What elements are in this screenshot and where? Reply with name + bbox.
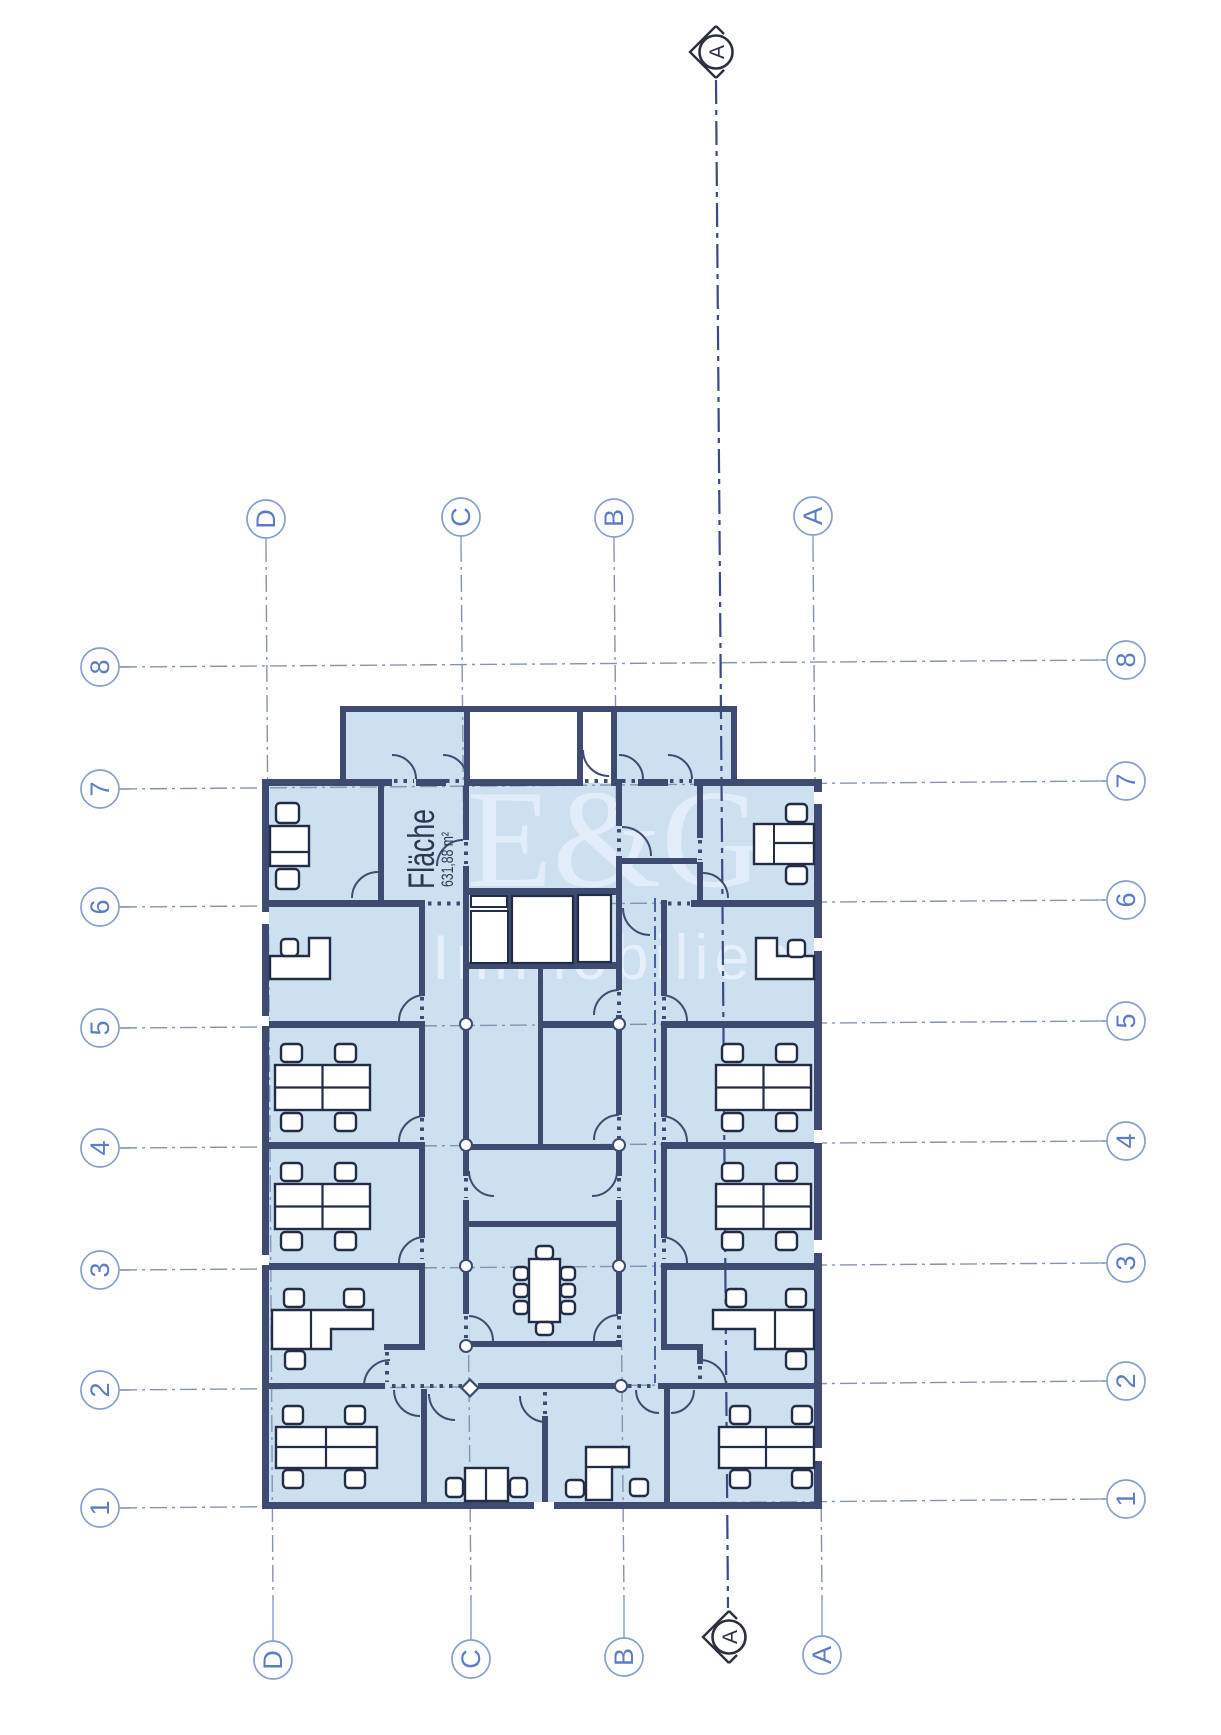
svg-text:4: 4 — [1111, 1133, 1141, 1148]
svg-text:7: 7 — [1111, 773, 1141, 788]
svg-text:B: B — [599, 509, 629, 527]
svg-text:631,88 m²: 631,88 m² — [438, 832, 457, 887]
svg-text:8: 8 — [1111, 652, 1141, 667]
svg-text:D: D — [258, 1650, 288, 1670]
svg-text:7: 7 — [85, 781, 115, 796]
svg-text:8: 8 — [85, 659, 115, 674]
svg-text:4: 4 — [85, 1140, 115, 1155]
svg-text:6: 6 — [85, 899, 115, 914]
svg-text:2: 2 — [1111, 1373, 1141, 1388]
svg-text:A: A — [719, 1630, 742, 1644]
svg-text:A: A — [807, 1646, 837, 1664]
svg-text:1: 1 — [1111, 1491, 1141, 1506]
svg-text:3: 3 — [1111, 1255, 1141, 1270]
svg-text:A: A — [706, 45, 729, 59]
svg-text:5: 5 — [85, 1020, 115, 1035]
svg-text:D: D — [251, 509, 281, 529]
svg-text:5: 5 — [1111, 1013, 1141, 1028]
svg-text:Fläche: Fläche — [401, 809, 442, 889]
svg-text:3: 3 — [85, 1262, 115, 1277]
svg-text:C: C — [456, 1649, 486, 1669]
svg-text:C: C — [446, 507, 476, 527]
svg-text:6: 6 — [1111, 892, 1141, 907]
svg-text:2: 2 — [85, 1382, 115, 1397]
svg-text:1: 1 — [85, 1500, 115, 1515]
svg-text:B: B — [609, 1648, 639, 1666]
svg-text:A: A — [798, 507, 828, 525]
